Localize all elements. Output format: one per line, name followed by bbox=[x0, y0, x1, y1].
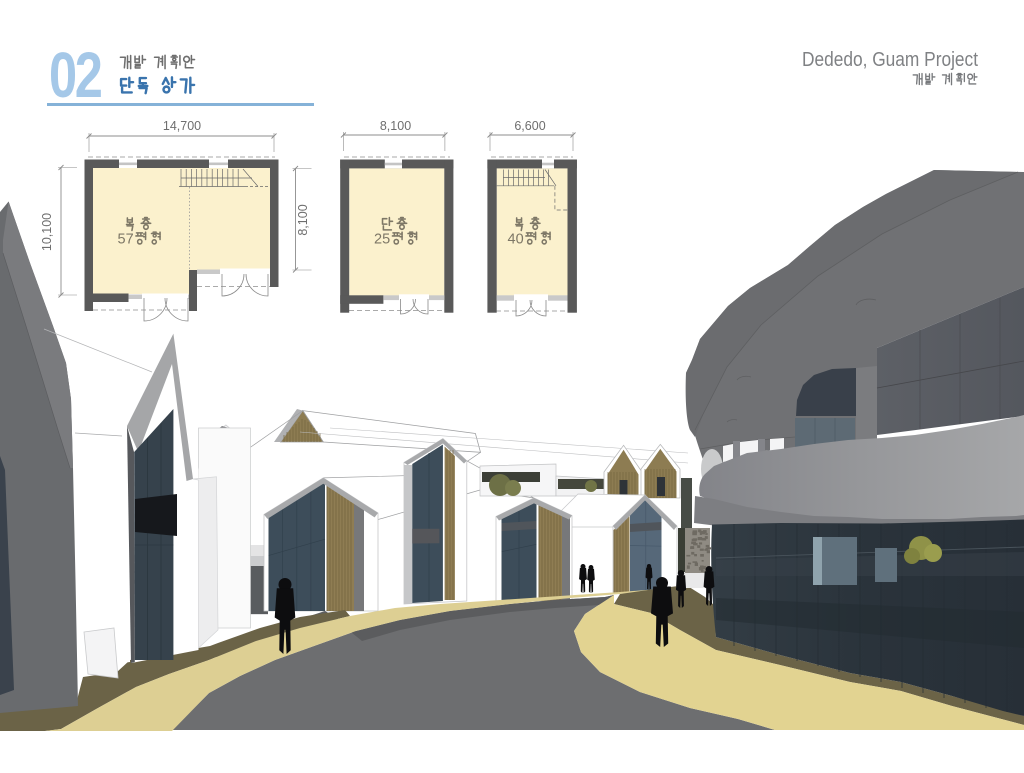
svg-text:8,100: 8,100 bbox=[380, 119, 411, 133]
svg-text:6,600: 6,600 bbox=[514, 119, 545, 133]
svg-text:40: 40 bbox=[508, 232, 524, 248]
svg-text:25: 25 bbox=[374, 232, 390, 248]
svg-text:14,700: 14,700 bbox=[163, 119, 201, 133]
svg-text:57: 57 bbox=[118, 232, 134, 248]
svg-text:02: 02 bbox=[49, 40, 101, 111]
svg-text:10,100: 10,100 bbox=[40, 213, 54, 251]
svg-text:Dededo, Guam Project: Dededo, Guam Project bbox=[802, 49, 978, 71]
svg-text:8,100: 8,100 bbox=[296, 204, 310, 235]
